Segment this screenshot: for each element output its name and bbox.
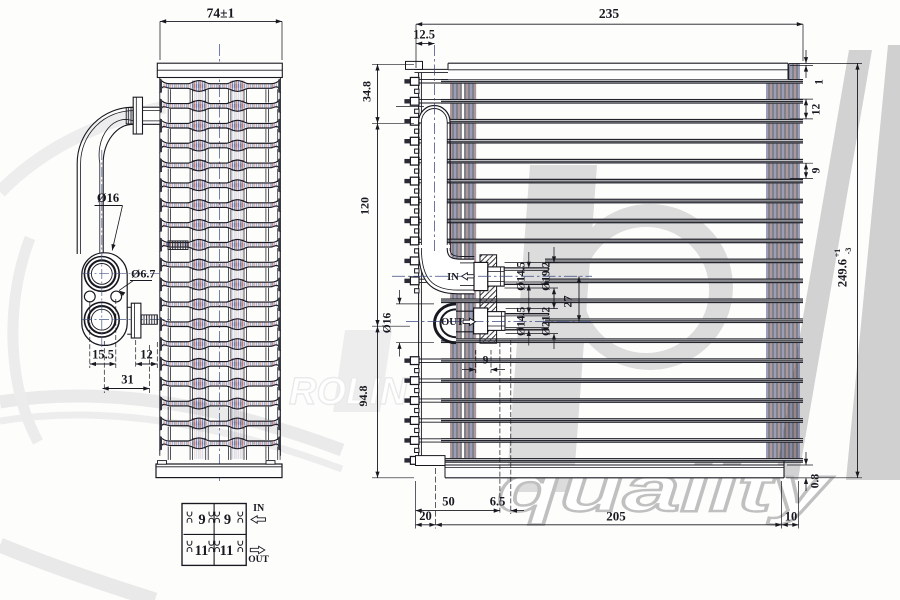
svg-text:IN: IN xyxy=(253,503,265,514)
svg-text:OUT: OUT xyxy=(441,317,464,328)
svg-text:9: 9 xyxy=(483,355,489,367)
svg-text:31: 31 xyxy=(121,373,134,387)
svg-text:12.5: 12.5 xyxy=(413,28,435,42)
svg-text:9: 9 xyxy=(811,167,823,173)
svg-text:Ø14.5: Ø14.5 xyxy=(516,307,528,336)
svg-text:0.8: 0.8 xyxy=(810,474,822,489)
svg-text:15.5: 15.5 xyxy=(92,348,114,362)
svg-text:9: 9 xyxy=(198,512,205,528)
svg-text:34.8: 34.8 xyxy=(360,81,374,102)
svg-text:94.8: 94.8 xyxy=(356,386,370,407)
svg-text:6.5: 6.5 xyxy=(490,495,506,509)
svg-text:IN: IN xyxy=(447,272,459,283)
svg-text:205: 205 xyxy=(606,509,626,524)
svg-text:Ø16: Ø16 xyxy=(97,191,119,205)
svg-text:10: 10 xyxy=(785,510,798,524)
svg-text:Ø16: Ø16 xyxy=(382,313,394,334)
svg-text:Ø6.7: Ø6.7 xyxy=(131,267,155,281)
svg-text:9: 9 xyxy=(224,512,231,528)
svg-text:1: 1 xyxy=(814,79,826,85)
svg-text:quality: quality xyxy=(497,452,833,525)
svg-text:12: 12 xyxy=(140,348,153,362)
svg-text:OUT: OUT xyxy=(248,555,269,565)
svg-text:-3: -3 xyxy=(844,248,853,255)
svg-text:249.6: 249.6 xyxy=(836,259,850,287)
svg-text:27: 27 xyxy=(561,296,575,308)
svg-text:+1: +1 xyxy=(833,249,842,258)
svg-text:11: 11 xyxy=(195,543,209,559)
svg-text:Ø21.2: Ø21.2 xyxy=(540,307,552,336)
svg-text:12: 12 xyxy=(811,104,823,116)
svg-text:20: 20 xyxy=(419,509,432,523)
svg-text:Ø19.2: Ø19.2 xyxy=(540,262,552,291)
svg-text:120: 120 xyxy=(357,197,371,215)
svg-text:74±1: 74±1 xyxy=(207,6,235,21)
svg-text:Ø14.5: Ø14.5 xyxy=(516,262,528,291)
svg-text:50: 50 xyxy=(442,495,455,509)
svg-text:235: 235 xyxy=(599,6,620,21)
svg-text:11: 11 xyxy=(220,543,234,559)
svg-text:ROLIN: ROLIN xyxy=(289,371,409,413)
